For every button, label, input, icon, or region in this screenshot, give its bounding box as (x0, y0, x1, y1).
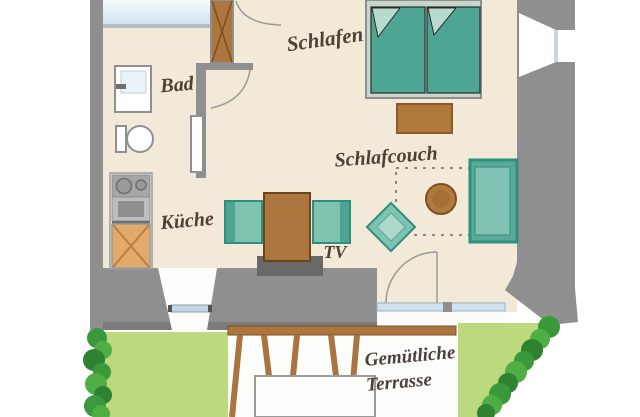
round-table-texture (432, 190, 450, 208)
radiator (191, 116, 203, 172)
opening-frame-right (208, 305, 212, 312)
dining-chair-right (313, 201, 350, 243)
chair-right-backrest (340, 202, 349, 242)
dining-table (264, 193, 310, 261)
toilet-tank (116, 126, 126, 152)
glass-door-mullion (443, 302, 452, 312)
bathroom-sink (115, 66, 151, 112)
sink-faucet (116, 84, 126, 89)
toilet (116, 126, 153, 152)
bathroom-window-frame (103, 24, 210, 28)
terrace-glass-door (377, 302, 505, 312)
bath-wall-horizontal (196, 63, 253, 70)
round-side-table (426, 184, 456, 214)
kitchen-block (110, 173, 152, 269)
glass-door-pane (377, 303, 505, 311)
side-window-outer (556, 30, 575, 62)
burner-small (136, 180, 146, 190)
bathroom-window (103, 0, 210, 28)
sofa-seat (475, 167, 510, 235)
oven-door (118, 201, 144, 217)
south-wall (90, 268, 377, 330)
toilet-bowl (127, 126, 153, 152)
dining-chair-left (225, 201, 262, 243)
sink-basin (121, 71, 146, 93)
chair-left-backrest (226, 202, 235, 242)
bed-bench (397, 104, 452, 133)
opening-frame-left (168, 305, 172, 312)
burner-large (117, 179, 132, 194)
entry-door (211, 0, 233, 63)
pergola-beam (228, 326, 456, 335)
opening-glass-door (171, 305, 211, 312)
tv-label: TV (323, 242, 348, 262)
sleeper-sofa (470, 160, 517, 242)
floor-plan-canvas: Schlafen Bad Küche Schlafcouch TV Gemütl… (0, 0, 640, 417)
side-window-glass (554, 30, 558, 62)
terrace-table (255, 376, 375, 417)
bathroom-label: Bad (158, 73, 195, 98)
bathroom-window-glass (103, 0, 210, 25)
double-bed (366, 0, 481, 98)
lawn-left (96, 332, 228, 417)
floor-plan-drawing: Schlafen Bad Küche Schlafcouch TV Gemütl… (0, 0, 640, 417)
west-wall (90, 0, 103, 330)
